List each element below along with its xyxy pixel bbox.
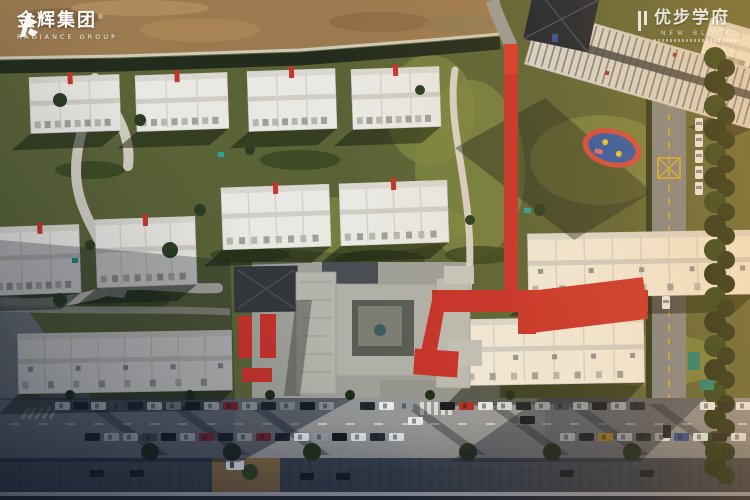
roof-skylight [272, 118, 278, 125]
parked-car [300, 473, 314, 480]
roof-skylight [511, 373, 517, 380]
roof-skylight [85, 119, 91, 126]
car-windshield [463, 404, 467, 409]
parked-car [130, 470, 144, 477]
roof-skylight [45, 121, 51, 128]
shrub [134, 114, 146, 126]
roof-skylight [161, 119, 167, 126]
aerial-photo: 金辉集团® RADIANCE GROUP 优步学府 NEW BLOCK [0, 0, 750, 500]
car-windshield [696, 170, 702, 173]
roof-skylight [396, 116, 402, 123]
roof-skylight [105, 119, 111, 126]
roof-skylight [345, 234, 351, 241]
tree [705, 443, 723, 461]
rooftop-unit [513, 355, 518, 360]
car-windshield [482, 404, 486, 409]
shrub [53, 93, 67, 107]
rooftop-unit [740, 265, 745, 270]
car-windshield [697, 435, 701, 440]
roof-skylight [321, 117, 327, 124]
lane-dash [458, 423, 467, 425]
rooftop-unit [589, 268, 594, 273]
car-windshield [696, 154, 702, 157]
rooftop-unit [591, 354, 596, 359]
roof-skylight [406, 231, 412, 238]
shrub [465, 215, 475, 225]
dumpster [688, 352, 700, 370]
utility-box [218, 152, 224, 157]
car-windshield [678, 435, 682, 440]
roof-skylight [55, 121, 61, 128]
red-entrance-canopy [67, 72, 72, 84]
roof-skylight [596, 371, 602, 378]
red-entrance-canopy [391, 178, 396, 190]
dirt-patch [330, 12, 430, 32]
car-windshield [402, 404, 406, 409]
tree [717, 467, 735, 485]
garden-bed [55, 161, 125, 179]
yard-tree [242, 464, 258, 480]
rooftop-unit [552, 354, 557, 359]
car-windshield [393, 435, 397, 440]
car-windshield [364, 404, 368, 409]
roof-skylight [300, 235, 306, 242]
car-windshield [722, 404, 726, 409]
shrub [415, 85, 425, 95]
parked-car [90, 470, 104, 477]
red-court [238, 316, 252, 358]
van-windshield [230, 462, 234, 468]
roof-skylight [95, 119, 101, 126]
roof-skylight [182, 118, 188, 125]
roof-skylight [276, 236, 282, 243]
rooftop-unit [630, 353, 635, 358]
roof-skylight [381, 232, 387, 239]
courtyard-pond [374, 324, 386, 336]
car-windshield [444, 404, 448, 409]
dirt-patch [424, 15, 496, 33]
parked-car [336, 473, 350, 480]
roof-skylight [292, 118, 298, 125]
roof-skylight [171, 118, 177, 125]
roof-skylight [532, 372, 538, 379]
roof-skylight [376, 116, 382, 123]
roof-skylight [405, 115, 411, 122]
roof-skylight [212, 117, 218, 124]
car-windshield [716, 435, 720, 440]
car-windshield [298, 435, 302, 440]
shrub [194, 204, 206, 216]
car-windshield [735, 435, 739, 440]
roof-skylight [425, 115, 431, 122]
red-plaza [413, 348, 459, 377]
car-windshield [663, 300, 669, 303]
car-windshield [501, 404, 505, 409]
lane-dash [486, 423, 495, 425]
car-windshield [520, 404, 524, 409]
roof-skylight [227, 238, 233, 245]
roof-skylight [263, 236, 269, 243]
red-court [260, 314, 276, 358]
crosswalk-stripe [434, 402, 438, 415]
roof-skylight [253, 119, 259, 126]
car-windshield [355, 435, 359, 440]
car-windshield [336, 435, 340, 440]
roof-skylight [311, 117, 317, 124]
dirt-patch [140, 18, 260, 42]
red-entrance-canopy [393, 64, 398, 76]
aerial-photo-scene [0, 0, 750, 500]
roof-skylight [239, 237, 245, 244]
roof-skylight [301, 117, 307, 124]
roof-skylight [65, 120, 71, 127]
red-stub-path [518, 302, 536, 334]
roof-skylight [151, 119, 157, 126]
roof-skylight [251, 237, 257, 244]
tree [303, 443, 321, 461]
school-block [444, 266, 474, 284]
roof-skylight [418, 231, 424, 238]
red-spine-path [504, 44, 518, 74]
dirt-patch [70, 0, 210, 16]
roof-skylight [694, 283, 700, 290]
car-windshield [317, 435, 321, 440]
roof-skylight [75, 120, 81, 127]
roof-skylight [357, 117, 363, 124]
red-entrance-canopy [143, 214, 148, 226]
roof-skylight [394, 232, 400, 239]
street-edge-light [0, 492, 750, 496]
roof-skylight [667, 283, 673, 290]
gate-barrier [552, 34, 558, 42]
roof-skylight [262, 119, 268, 126]
roof-skylight [617, 371, 623, 378]
lane-dash [738, 423, 747, 425]
tree [425, 390, 435, 400]
rooftop-unit [639, 267, 644, 272]
red-court [242, 368, 272, 382]
parked-car [640, 470, 654, 477]
roof-skylight [357, 233, 363, 240]
parked-car [560, 470, 574, 477]
roof-skylight [430, 231, 436, 238]
car-windshield [383, 404, 387, 409]
shrub [534, 204, 546, 216]
car-windshield [696, 186, 702, 189]
red-entrance-canopy [37, 222, 42, 234]
utility-box [524, 208, 531, 213]
roof-skylight [575, 372, 581, 379]
rooftop-unit [690, 266, 695, 271]
red-spine-path [504, 44, 518, 304]
roof-skylight [490, 373, 496, 380]
garden-bed [260, 150, 340, 170]
roof-skylight [202, 117, 208, 124]
garden-shadow [0, 240, 235, 400]
roof-skylight [35, 121, 41, 128]
lane-dash [374, 423, 383, 425]
shrub [245, 145, 255, 155]
roof-skylight [288, 235, 294, 242]
red-entrance-canopy [273, 182, 278, 194]
car-windshield [740, 404, 744, 409]
car-windshield [412, 419, 416, 424]
roof-skylight [192, 117, 198, 124]
red-entrance-canopy [174, 70, 179, 82]
dumpster [700, 380, 714, 390]
car-windshield [696, 122, 702, 125]
roof-skylight [282, 118, 288, 125]
car-windshield [704, 404, 708, 409]
roof-skylight [312, 235, 318, 242]
lane-dash [318, 423, 327, 425]
roof-skylight [369, 233, 375, 240]
car-windshield [374, 435, 378, 440]
tree [505, 390, 515, 400]
car-windshield [696, 138, 702, 141]
rooftop-unit [538, 269, 543, 274]
red-entrance-canopy [289, 66, 294, 78]
roof-skylight [415, 115, 421, 122]
roof-skylight [386, 116, 392, 123]
street-edge-dark [0, 496, 750, 500]
roof-skylight [553, 372, 559, 379]
roof-skylight [366, 117, 372, 124]
lane-dash [346, 423, 355, 425]
